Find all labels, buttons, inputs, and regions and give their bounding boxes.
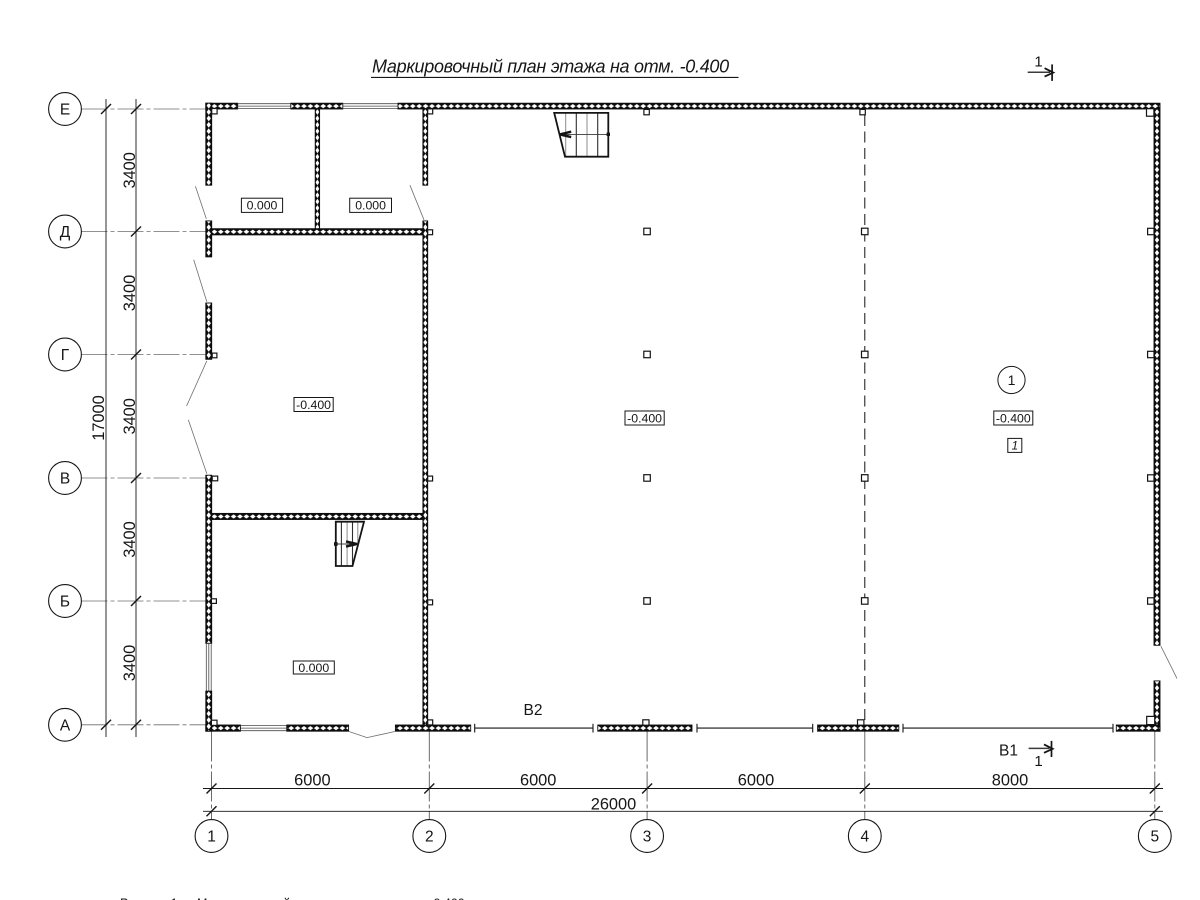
svg-text:Е: Е	[60, 102, 70, 119]
svg-text:1: 1	[1011, 439, 1018, 453]
svg-text:6000: 6000	[520, 772, 556, 790]
svg-text:Д: Д	[60, 224, 71, 241]
svg-text:Маркировочный план этажа на от: Маркировочный план этажа на отм. -0.400	[372, 57, 729, 77]
svg-text:0.000: 0.000	[247, 199, 278, 213]
svg-text:Г: Г	[61, 347, 70, 364]
svg-text:5: 5	[1150, 829, 1159, 846]
svg-text:1: 1	[1034, 53, 1042, 70]
svg-text:26000: 26000	[591, 795, 637, 813]
svg-text:В1: В1	[999, 743, 1018, 760]
svg-text:В2: В2	[524, 702, 543, 719]
svg-text:2: 2	[425, 829, 434, 846]
svg-text:1: 1	[1008, 372, 1016, 388]
svg-text:А: А	[60, 717, 71, 734]
svg-text:-0.400: -0.400	[996, 411, 1031, 425]
svg-text:0.000: 0.000	[355, 199, 386, 213]
svg-text:6000: 6000	[294, 772, 330, 790]
svg-text:Б: Б	[60, 594, 70, 611]
svg-text:0.000: 0.000	[298, 661, 329, 675]
svg-text:-0.400: -0.400	[296, 398, 331, 412]
svg-text:В: В	[60, 471, 70, 488]
svg-text:3400: 3400	[121, 521, 139, 557]
svg-text:1: 1	[207, 829, 216, 846]
svg-text:6000: 6000	[738, 772, 774, 790]
svg-text:3400: 3400	[121, 152, 139, 188]
svg-text:3400: 3400	[121, 645, 139, 681]
svg-text:Рисунок 1 — Маркировочный план: Рисунок 1 — Маркировочный план этажа на …	[120, 897, 509, 900]
svg-text:3400: 3400	[121, 275, 139, 311]
svg-text:4: 4	[860, 829, 869, 846]
svg-text:-0.400: -0.400	[627, 411, 662, 425]
svg-text:3: 3	[643, 829, 652, 846]
svg-text:17000: 17000	[90, 395, 108, 441]
svg-text:8000: 8000	[992, 772, 1028, 790]
svg-text:1: 1	[1034, 753, 1042, 770]
svg-text:3400: 3400	[121, 398, 139, 434]
